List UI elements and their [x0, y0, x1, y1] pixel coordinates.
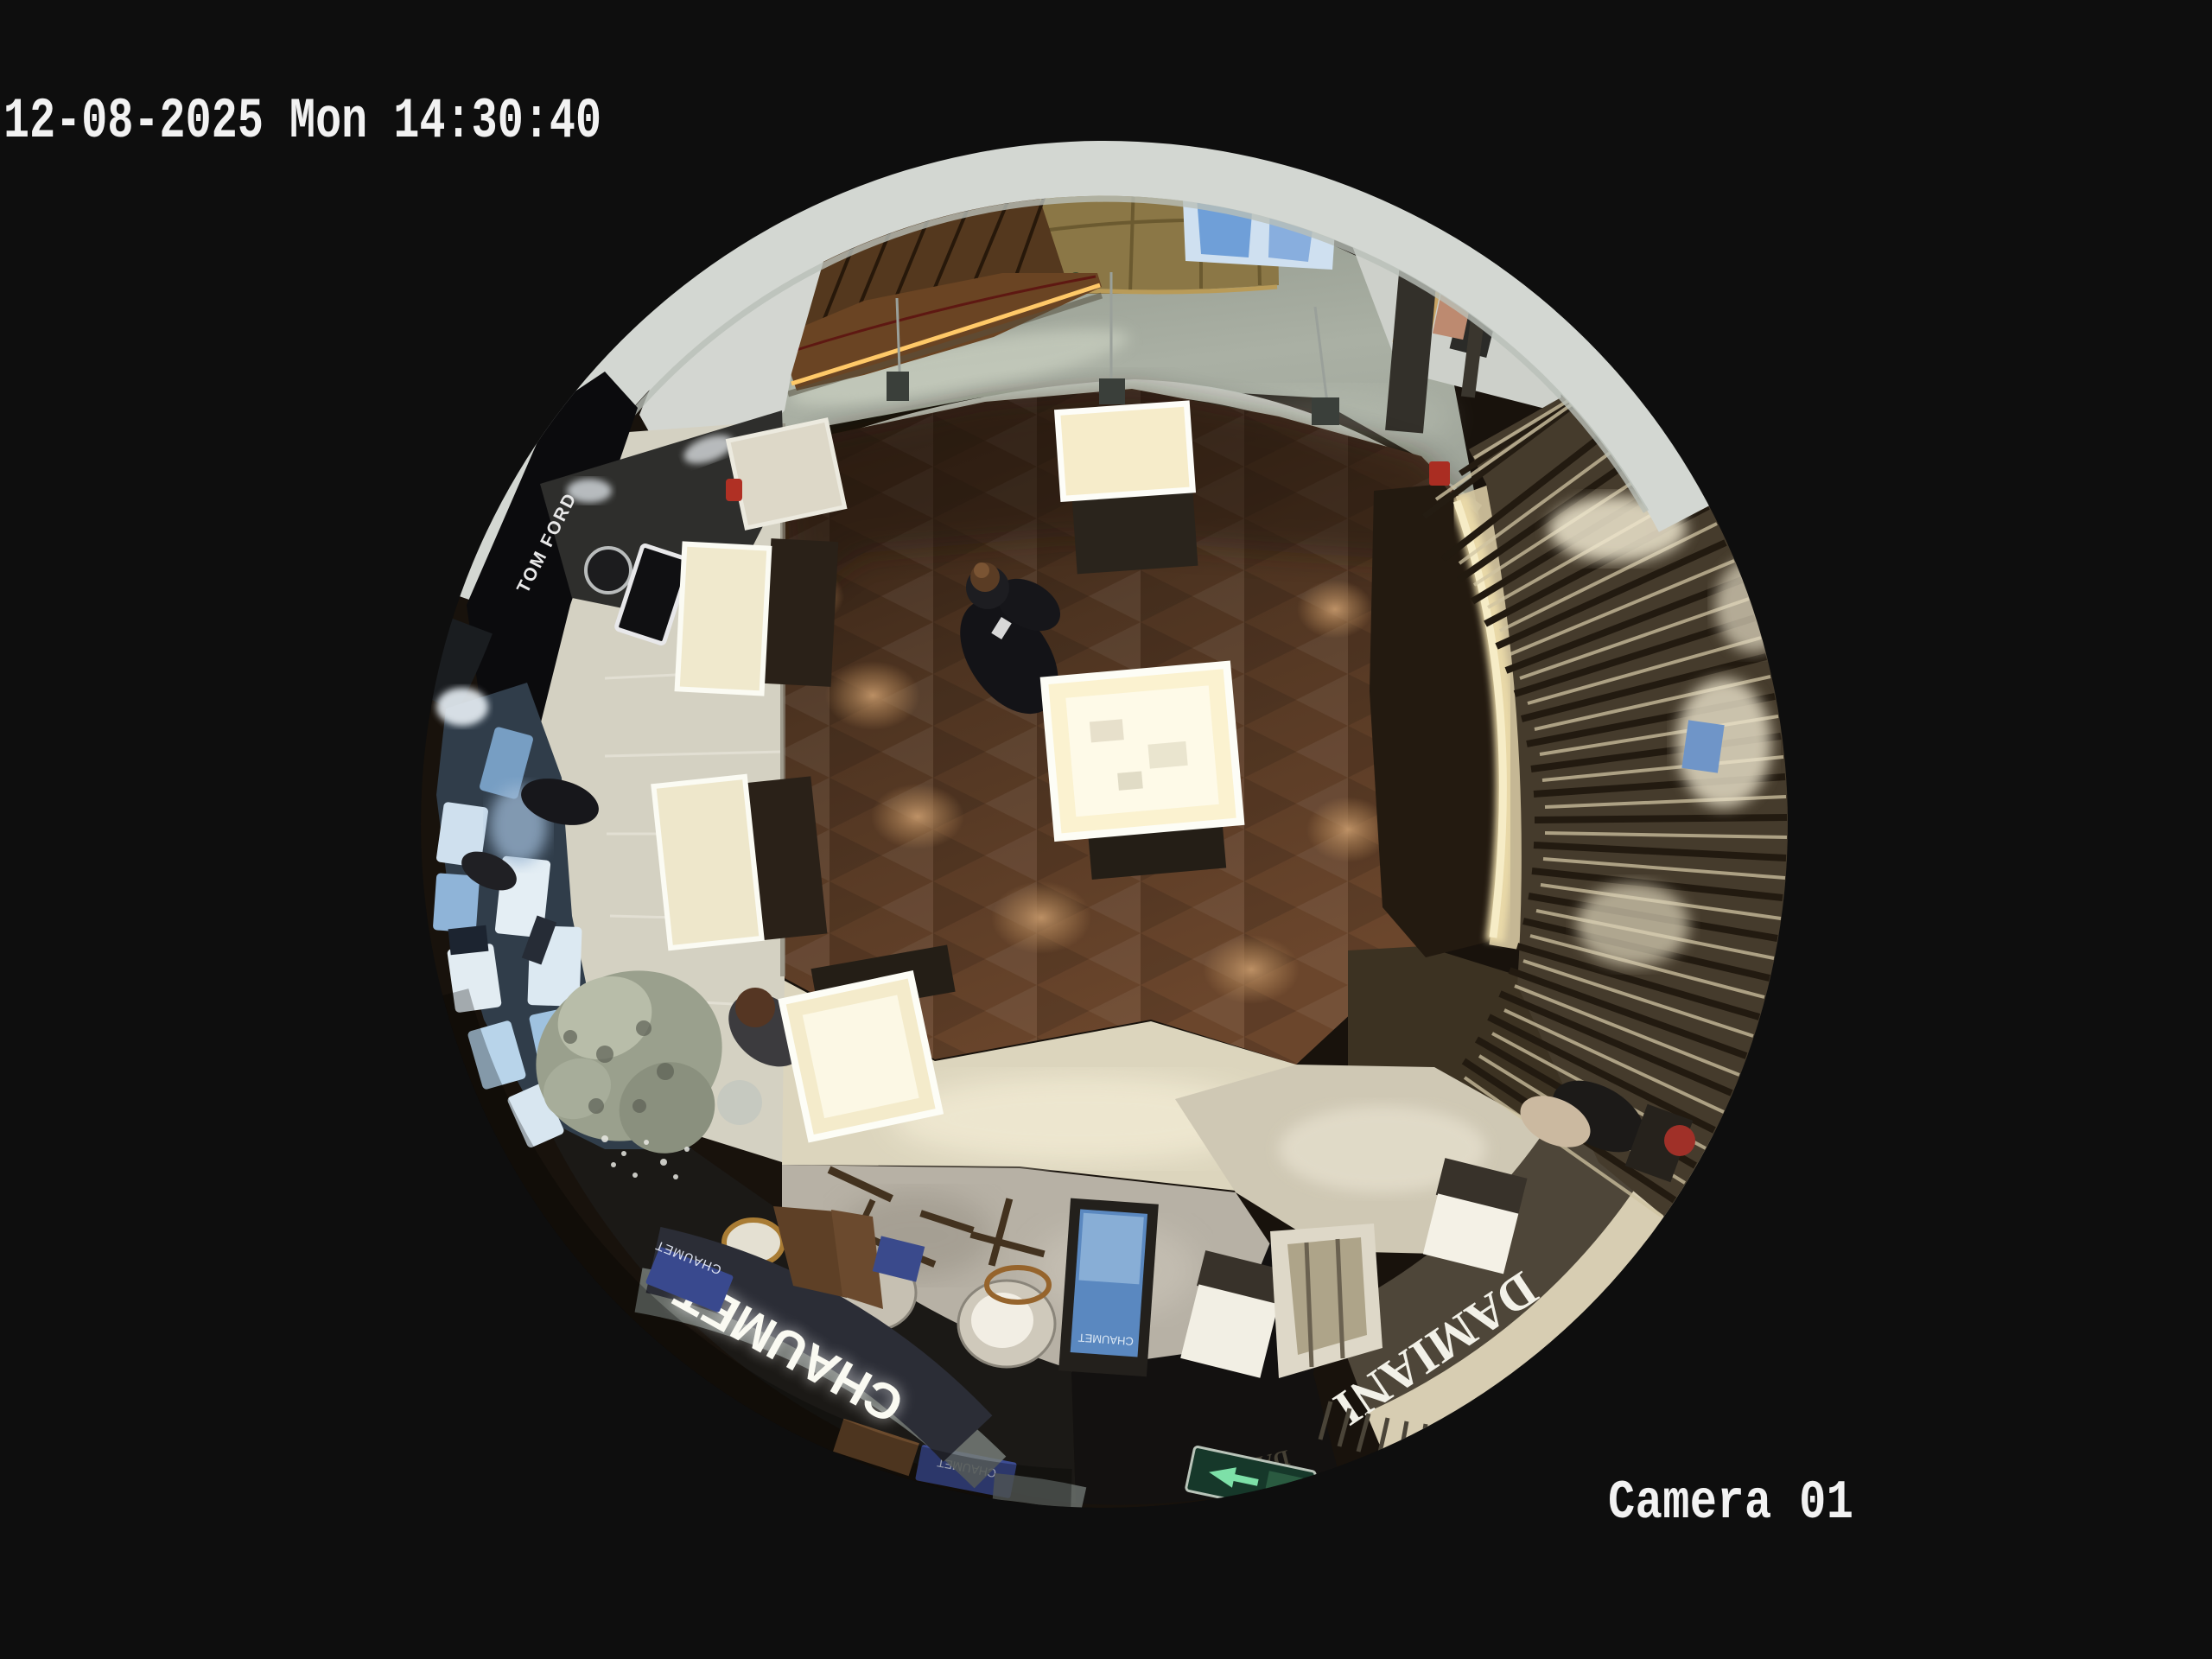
svg-text:12-08-2025 Mon 14:30:40: 12-08-2025 Mon 14:30:40 [3, 90, 601, 154]
svg-text:Camera 01: Camera 01 [1608, 1473, 1853, 1535]
